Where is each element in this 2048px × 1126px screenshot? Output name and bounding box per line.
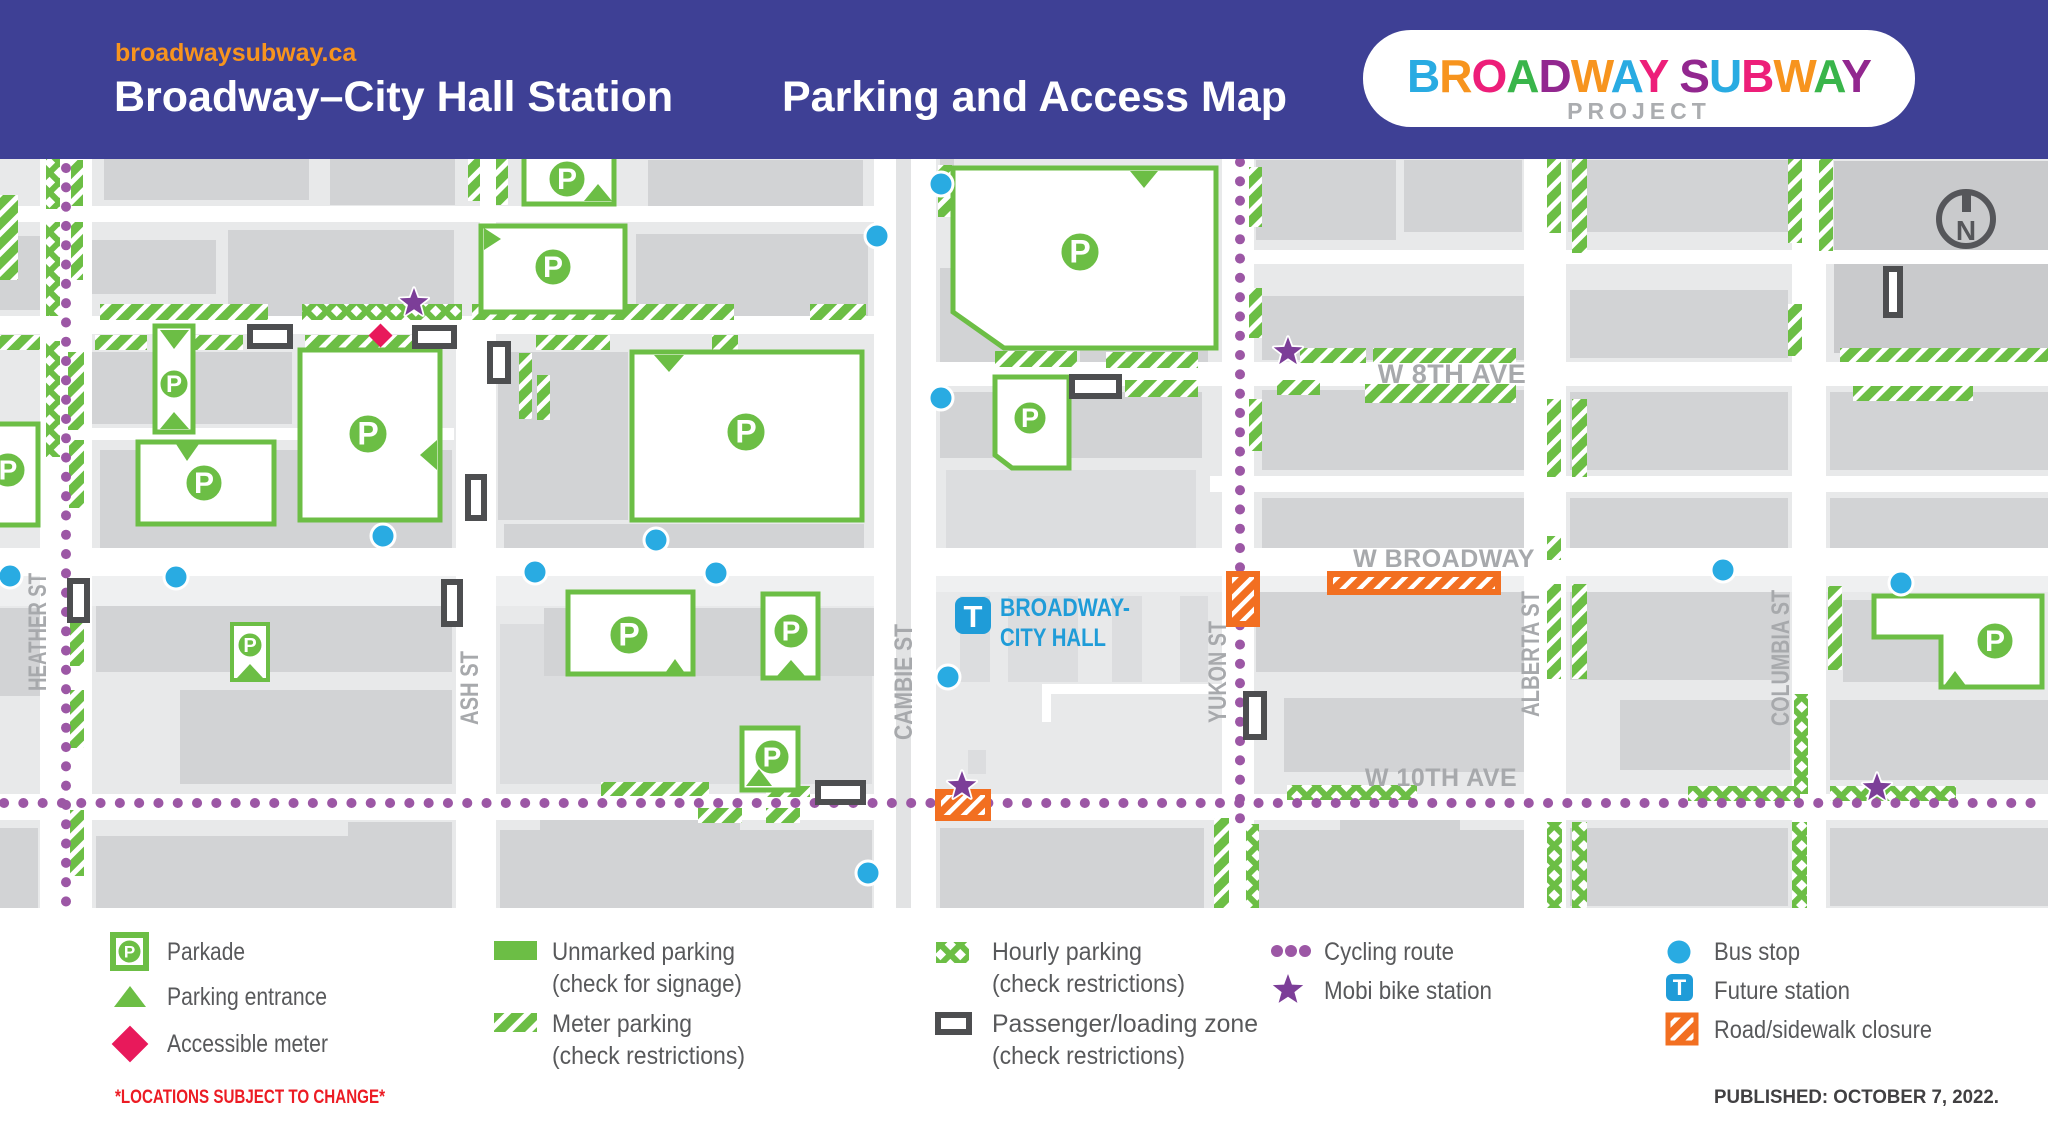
svg-text:Cycling route: Cycling route <box>1324 938 1454 966</box>
svg-text:P: P <box>1069 233 1090 269</box>
svg-text:P: P <box>1021 403 1039 433</box>
svg-text:N: N <box>1956 215 1976 246</box>
svg-text:W 8TH AVE: W 8TH AVE <box>1378 359 1527 389</box>
svg-text:T: T <box>964 599 983 634</box>
svg-text:Bus stop: Bus stop <box>1714 938 1800 966</box>
svg-text:P: P <box>618 616 639 652</box>
svg-text:(check restrictions): (check restrictions) <box>552 1042 745 1070</box>
svg-text:P: P <box>357 415 378 451</box>
svg-text:(check for signage): (check for signage) <box>552 970 742 998</box>
svg-text:BROADWAY-: BROADWAY- <box>1000 594 1130 622</box>
svg-text:P: P <box>0 454 17 485</box>
svg-text:T: T <box>1673 975 1687 1000</box>
svg-text:PUBLISHED: OCTOBER 7, 2022.: PUBLISHED: OCTOBER 7, 2022. <box>1714 1087 1999 1108</box>
svg-text:W 10TH AVE: W 10TH AVE <box>1365 764 1517 792</box>
svg-text:BROADWAY SUBWAY: BROADWAY SUBWAY <box>1407 50 1871 102</box>
svg-text:*LOCATIONS SUBJECT TO CHANGE*: *LOCATIONS SUBJECT TO CHANGE* <box>115 1087 385 1108</box>
svg-text:P: P <box>543 251 563 284</box>
svg-text:broadwaysubway.ca: broadwaysubway.ca <box>115 39 357 67</box>
svg-text:CITY HALL: CITY HALL <box>1000 624 1106 652</box>
svg-text:Meter parking: Meter parking <box>552 1010 692 1038</box>
svg-text:Parking entrance: Parking entrance <box>167 983 327 1011</box>
svg-text:CAMBIE ST: CAMBIE ST <box>890 624 918 740</box>
svg-text:P: P <box>243 635 256 657</box>
svg-text:P: P <box>194 467 214 500</box>
svg-text:HEATHER ST: HEATHER ST <box>24 573 52 691</box>
svg-text:P: P <box>557 163 577 196</box>
svg-text:Broadway–City Hall Station: Broadway–City Hall Station <box>114 73 673 121</box>
svg-text:ASH ST: ASH ST <box>456 651 484 725</box>
svg-text:YUKON ST: YUKON ST <box>1204 621 1232 723</box>
svg-text:P: P <box>1985 625 2005 658</box>
svg-text:Parking and Access Map: Parking and Access Map <box>782 73 1287 121</box>
svg-text:Accessible meter: Accessible meter <box>167 1030 328 1058</box>
svg-text:Unmarked parking: Unmarked parking <box>552 938 735 966</box>
svg-text:COLUMBIA ST: COLUMBIA ST <box>1767 590 1795 726</box>
svg-text:ALBERTA ST: ALBERTA ST <box>1517 591 1545 717</box>
svg-text:(check restrictions): (check restrictions) <box>992 1042 1185 1070</box>
svg-text:Road/sidewalk closure: Road/sidewalk closure <box>1714 1016 1932 1044</box>
svg-text:Future station: Future station <box>1714 977 1850 1005</box>
svg-text:Hourly parking: Hourly parking <box>992 938 1142 966</box>
svg-text:(check restrictions): (check restrictions) <box>992 970 1185 998</box>
svg-text:P: P <box>782 615 801 646</box>
svg-text:P: P <box>763 741 782 772</box>
svg-text:Parkade: Parkade <box>167 938 245 966</box>
svg-text:P: P <box>166 371 182 398</box>
svg-text:P: P <box>735 413 756 449</box>
svg-text:Passenger/loading zone: Passenger/loading zone <box>992 1010 1258 1038</box>
svg-text:PROJECT: PROJECT <box>1567 98 1711 124</box>
svg-text:W BROADWAY: W BROADWAY <box>1353 545 1535 573</box>
svg-text:P: P <box>124 943 135 962</box>
svg-text:Mobi bike station: Mobi bike station <box>1324 977 1492 1005</box>
